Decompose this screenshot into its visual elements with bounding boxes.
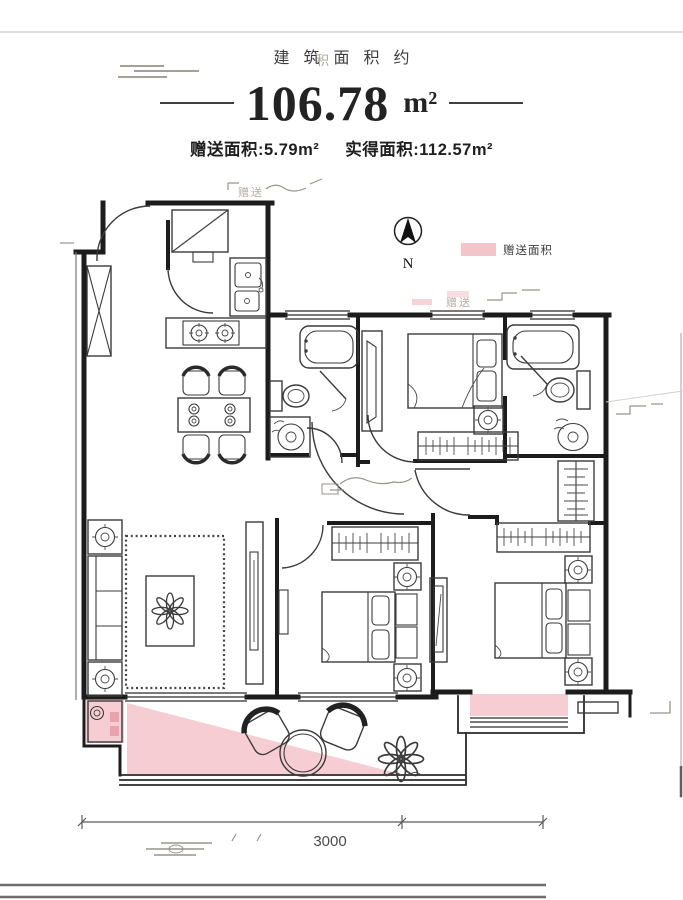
shower-screen bbox=[320, 371, 346, 399]
nightstand bbox=[568, 624, 590, 655]
lamp-icon bbox=[394, 564, 420, 590]
pillow bbox=[477, 340, 496, 367]
flower-icon bbox=[152, 593, 188, 629]
dining-chair bbox=[219, 367, 245, 395]
windows bbox=[125, 311, 575, 701]
bedroom2-door-arc bbox=[282, 525, 323, 568]
nightstand bbox=[396, 594, 417, 625]
tv-console bbox=[246, 522, 263, 684]
washer-detail bbox=[110, 726, 119, 736]
shower-screen bbox=[521, 356, 547, 384]
pillow bbox=[372, 630, 389, 659]
toilet-tank bbox=[270, 381, 282, 411]
dining-area bbox=[178, 367, 250, 463]
legend-swatch bbox=[461, 243, 496, 256]
north-label: N bbox=[403, 256, 414, 272]
master-door-arc bbox=[368, 415, 415, 462]
bed bbox=[322, 592, 395, 662]
pillow bbox=[546, 623, 562, 653]
master-bedroom bbox=[362, 331, 518, 462]
kitchen bbox=[166, 210, 266, 348]
kitchen-door-arc bbox=[168, 268, 213, 313]
bathtub bbox=[507, 325, 579, 369]
toilet-tank bbox=[577, 371, 590, 409]
watermark-2: 赠送 bbox=[446, 295, 472, 309]
gift-areas bbox=[86, 694, 568, 774]
north-arrow-icon bbox=[400, 218, 416, 243]
pink-smudge bbox=[447, 291, 469, 297]
bedroom-2 bbox=[279, 525, 421, 691]
dining-table bbox=[178, 398, 250, 432]
bed bbox=[495, 583, 566, 658]
washer-detail bbox=[110, 712, 119, 722]
toilet bbox=[546, 378, 574, 402]
pillow bbox=[477, 371, 496, 401]
watermark-1: 赠送 bbox=[238, 185, 264, 199]
mirror-cabinet bbox=[362, 331, 382, 431]
dining-chair bbox=[183, 367, 209, 395]
lamp-icon bbox=[394, 665, 420, 691]
closet bbox=[558, 461, 594, 521]
toilet bbox=[283, 385, 309, 407]
legend-label: 赠送面积 bbox=[503, 243, 553, 257]
dining-chair bbox=[219, 435, 245, 463]
dining-chair bbox=[183, 435, 209, 463]
bathtub bbox=[300, 326, 358, 368]
lamp-icon bbox=[475, 407, 501, 433]
bay-window-gift-area bbox=[470, 694, 568, 716]
outer-walls bbox=[76, 203, 630, 700]
mirror bbox=[279, 590, 288, 634]
coffee-table bbox=[146, 576, 194, 646]
sink bbox=[558, 424, 588, 451]
pillow bbox=[546, 589, 562, 619]
dimension: 3000 bbox=[78, 815, 547, 855]
legend: 赠送面积 bbox=[461, 243, 553, 257]
sink bbox=[278, 424, 304, 450]
bedroom3-door-arc bbox=[415, 470, 470, 515]
pillow bbox=[372, 596, 389, 625]
entry bbox=[87, 206, 150, 356]
lamp-icon bbox=[565, 659, 591, 685]
floorplan-page: 积 建筑面积约 106.78 m² 赠送面积:5.79m² 实得面积:112.5… bbox=[0, 0, 683, 900]
floorplan-svg: N 赠送面积 3000 赠送 赠送 bbox=[0, 0, 683, 900]
dimension-value: 3000 bbox=[313, 833, 346, 850]
watermarks: 赠送 赠送 bbox=[228, 179, 683, 494]
sofa bbox=[88, 556, 122, 660]
lamp-icon bbox=[92, 666, 118, 692]
nightstand bbox=[568, 590, 590, 621]
compass: N bbox=[395, 218, 422, 273]
lamp-icon bbox=[565, 557, 591, 583]
bathroom-2 bbox=[507, 325, 590, 451]
nightstand bbox=[396, 627, 417, 658]
pink-smudge bbox=[412, 299, 432, 305]
lamp-icon bbox=[92, 524, 118, 550]
